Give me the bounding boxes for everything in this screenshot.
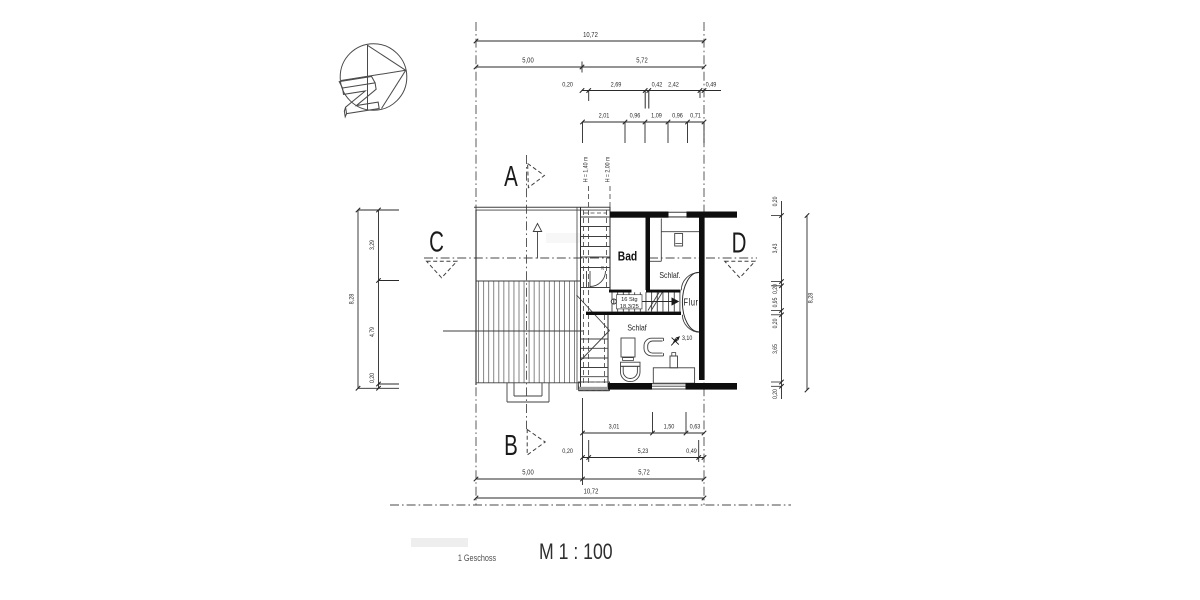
svg-text:5,72: 5,72 [636, 57, 648, 65]
svg-text:Bad: Bad [618, 248, 637, 264]
svg-text:0,20: 0,20 [370, 373, 376, 383]
svg-text:2,42: 2,42 [668, 81, 679, 89]
svg-text:A: A [504, 162, 518, 193]
svg-text:Flur: Flur [684, 296, 699, 307]
svg-text:5,00: 5,00 [522, 469, 534, 477]
svg-text:2,01: 2,01 [599, 112, 610, 120]
svg-text:3,01: 3,01 [609, 423, 620, 431]
svg-text:1,50: 1,50 [664, 423, 675, 431]
svg-text:Schlaf: Schlaf [627, 323, 647, 333]
svg-text:8,28: 8,28 [348, 293, 356, 304]
svg-text:38: 38 [600, 265, 605, 270]
svg-text:D: D [732, 228, 747, 259]
svg-text:0,63: 0,63 [690, 423, 701, 431]
svg-text:4,79: 4,79 [370, 327, 376, 337]
svg-text:0,20: 0,20 [773, 284, 779, 294]
svg-text:B: B [504, 431, 518, 462]
svg-text:H = 2,00 m: H = 2,00 m [605, 156, 611, 182]
svg-text:0,20: 0,20 [773, 319, 779, 329]
svg-text:16 Stg: 16 Stg [621, 297, 637, 303]
svg-text:0,96: 0,96 [672, 112, 683, 120]
svg-text:0,49: 0,49 [686, 448, 697, 456]
svg-text:2,69: 2,69 [611, 81, 622, 89]
svg-text:3,29: 3,29 [370, 240, 376, 250]
svg-text:0,49: 0,49 [706, 81, 717, 89]
svg-text:C: C [429, 227, 444, 258]
svg-text:Schlaf.: Schlaf. [659, 270, 680, 280]
svg-text:3,65: 3,65 [773, 344, 779, 354]
svg-text:0,95: 0,95 [773, 298, 779, 308]
svg-text:5,72: 5,72 [638, 469, 650, 477]
svg-text:0,20: 0,20 [562, 448, 573, 456]
svg-text:18,3/25: 18,3/25 [620, 304, 639, 310]
svg-text:10,72: 10,72 [583, 32, 598, 40]
svg-text:0,20: 0,20 [773, 197, 779, 207]
svg-text:0,42: 0,42 [652, 81, 663, 89]
svg-text:3,43: 3,43 [773, 244, 779, 254]
svg-text:8,28: 8,28 [807, 292, 815, 303]
svg-text:0,20: 0,20 [773, 389, 779, 399]
svg-text:0,71: 0,71 [690, 112, 701, 120]
svg-text:5,00: 5,00 [522, 57, 534, 65]
svg-text:1,09: 1,09 [651, 112, 662, 120]
svg-text:0,20: 0,20 [562, 81, 573, 89]
svg-text:3,10: 3,10 [682, 335, 692, 341]
svg-text:5,23: 5,23 [638, 448, 649, 456]
svg-text:0,96: 0,96 [630, 112, 641, 120]
svg-text:10,72: 10,72 [584, 488, 599, 496]
svg-text:H = 1,40 m: H = 1,40 m [583, 156, 589, 182]
svg-text:1 Geschoss: 1 Geschoss [458, 552, 496, 563]
svg-text:M 1 : 100: M 1 : 100 [539, 540, 613, 564]
